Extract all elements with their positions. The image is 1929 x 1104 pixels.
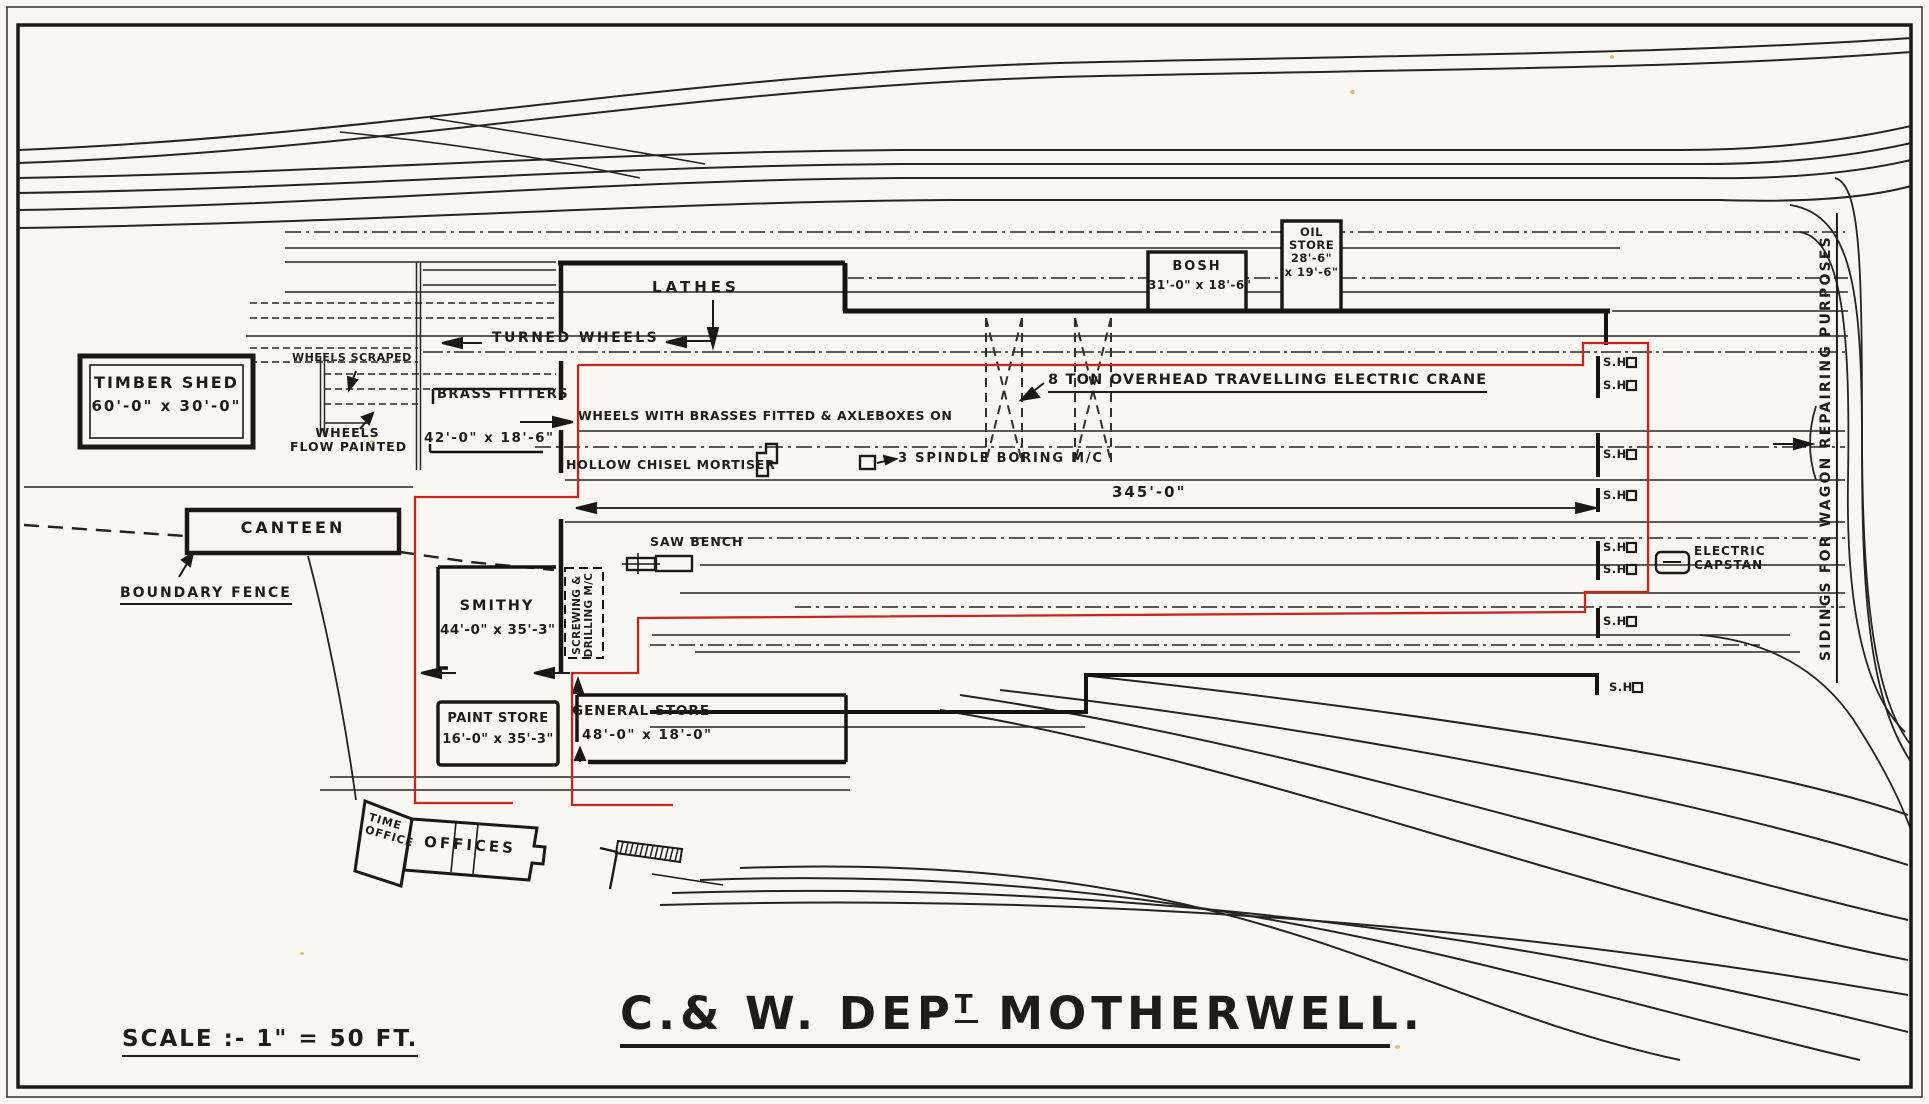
screwing-line1: SCREWING & [571,563,583,667]
brass-fitters-label: BRASS FITTERS [437,388,569,403]
electric-capstan-line2: CAPSTAN [1694,559,1766,573]
bosh-name: BOSH [1148,260,1246,275]
oil-store-label: OIL STORE 28'-6" x 19'-6" [1282,226,1341,279]
sh-marker: S.H [1603,489,1627,502]
crane-label: 8 TON OVERHEAD TRAVELLING ELECTRIC CRANE [1048,372,1487,393]
paper-speck [1350,90,1355,94]
oil-store-line3: 28'-6" [1282,252,1341,265]
paper-speck [1610,55,1614,59]
sh-marker: S.H [1603,541,1627,554]
sh-marker: S.H [1603,615,1627,628]
sh-marker: S.H [1603,379,1627,392]
paint-store-label: PAINT STORE 16'-0" x 35'-3" [440,712,556,748]
paper-speck [1395,1045,1400,1049]
hollow-chisel-mortiser-label: HOLLOW CHISEL MORTISER [566,458,776,472]
spindle-boring-label: 3 SPINDLE BORING M/C [898,452,1104,467]
sh-marker: S.H [1603,356,1627,369]
general-store-dims: 48'-0" x 18'-0" [582,728,713,744]
smithy-name: SMITHY [440,598,554,615]
oil-store-line4: x 19'-6" [1282,266,1341,279]
canteen-label: CANTEEN [187,519,399,537]
lathes-label: LATHES [652,279,740,296]
smithy-label: SMITHY 44'-0" x 35'-3" [440,598,554,638]
scale-label: SCALE :- 1" = 50 FT. [122,1026,418,1057]
electric-capstan-line1: ELECTRIC [1694,545,1766,559]
drawing-title: C.& W. DEPT MOTHERWELL. [620,988,1390,1048]
wheels-scraped-label: WHEELS SCRAPED [292,352,412,365]
timber-shed-name: TIMBER SHED [90,374,243,392]
wheels-with-brasses-label: WHEELS WITH BRASSES FITTED & AXLEBOXES O… [578,409,952,423]
general-store-label: GENERAL STORE [572,704,710,720]
screwing-drilling-label: SCREWING & DRILLING M/C [571,563,595,667]
timber-shed-label: TIMBER SHED 60'-0" x 30'-0" [90,374,243,416]
timber-shed-dims: 60'-0" x 30'-0" [90,398,243,415]
screwing-line2: DRILLING M/C [583,563,595,667]
title-prefix: C.& W. DEP [620,987,955,1040]
sidings-note-label: SIDINGS FOR WAGON REPAIRING PURPOSES [1818,213,1838,683]
sh-marker: S.H [1609,681,1633,694]
paper-speck [300,952,304,955]
turned-wheels-label: TURNED WHEELS [492,330,659,346]
wheels-flow-painted-line2: FLOW PAINTED [290,440,405,454]
paper-speck [370,440,374,443]
brass-fitters-dims: 42'-0" x 18'-6" [424,431,555,447]
bosh-dims: 31'-0" x 18'-6" [1148,279,1246,293]
sh-marker: S.H [1603,448,1627,461]
wheels-flow-painted-line1: WHEELS [290,426,405,440]
paint-store-dims: 16'-0" x 35'-3" [440,733,556,748]
sh-marker: S.H [1603,563,1627,576]
length-dimension-label: 345'-0" [1112,484,1186,501]
saw-bench-label: SAW BENCH [650,535,743,549]
boundary-fence-label: BOUNDARY FENCE [120,585,292,605]
paint-store-name: PAINT STORE [440,712,556,727]
smithy-dims: 44'-0" x 35'-3" [440,623,554,639]
electric-capstan-label: ELECTRIC CAPSTAN [1694,545,1766,573]
bosh-label: BOSH 31'-0" x 18'-6" [1148,260,1246,293]
wheels-flow-painted-label: WHEELS FLOW PAINTED [290,426,405,455]
plan-linework [0,0,1929,1104]
title-superscript: T [955,990,978,1023]
site-plan-drawing: LATHES TURNED WHEELS WHEELS SCRAPED WHEE… [0,0,1929,1104]
title-suffix: MOTHERWELL. [978,987,1425,1040]
